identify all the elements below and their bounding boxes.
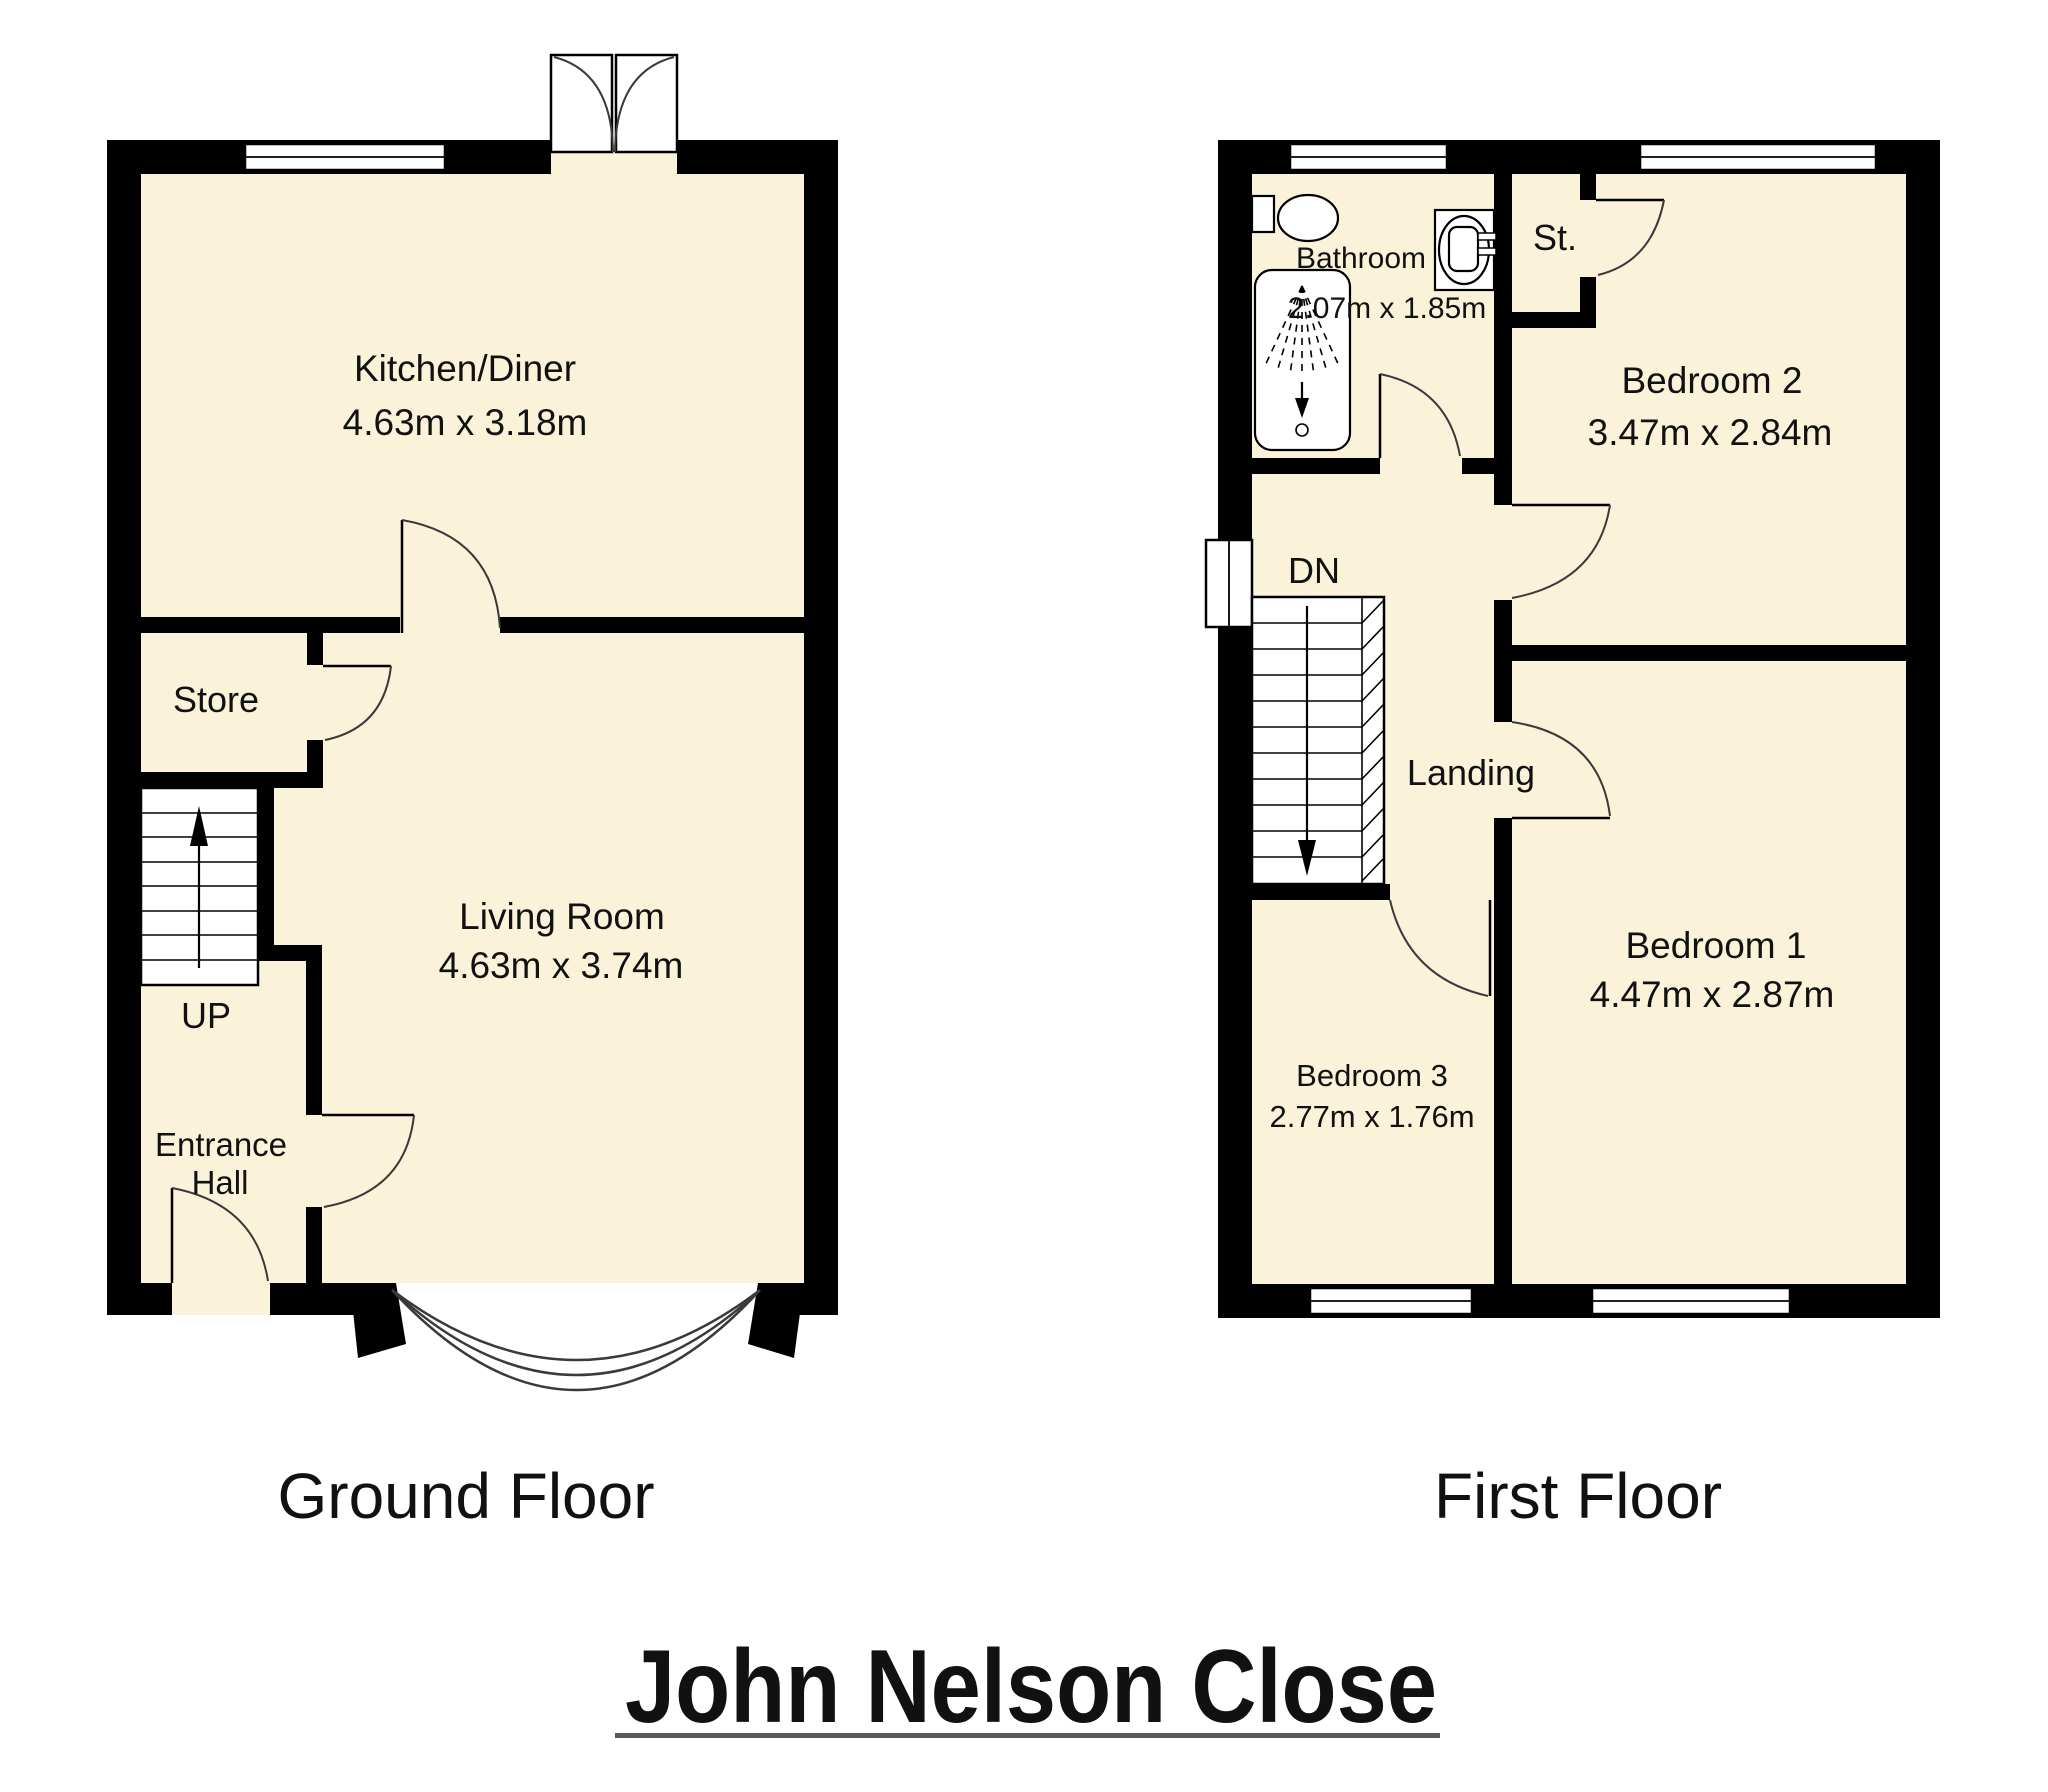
stairs-up bbox=[141, 788, 258, 985]
ground-floor-title: Ground Floor bbox=[277, 1460, 654, 1532]
room-label-entrance: Entrance bbox=[155, 1126, 287, 1163]
room-label-bedroom2: Bedroom 2 bbox=[1622, 360, 1803, 401]
room-dims-kitchen: 4.63m x 3.18m bbox=[343, 402, 588, 443]
room-dims-living: 4.63m x 3.74m bbox=[439, 945, 684, 986]
first-floor-plan: Bathroom 2.07m x 1.85m St. Bedroom 2 3.4… bbox=[1206, 140, 1940, 1532]
room-label-st: St. bbox=[1533, 217, 1577, 258]
stairs-label-dn: DN bbox=[1288, 550, 1340, 591]
french-doors-icon bbox=[551, 55, 677, 152]
front-door-threshold bbox=[172, 1283, 270, 1315]
washbasin-icon bbox=[1435, 210, 1496, 290]
room-label-bedroom3: Bedroom 3 bbox=[1296, 1058, 1448, 1093]
stairs-label-up: UP bbox=[181, 995, 231, 1036]
stairs-down bbox=[1252, 597, 1384, 884]
room-label-store: Store bbox=[173, 679, 259, 720]
room-label-landing: Landing bbox=[1407, 752, 1535, 793]
title-underline bbox=[615, 1733, 1440, 1738]
room-dims-bedroom3: 2.77m x 1.76m bbox=[1269, 1099, 1474, 1134]
ground-floor-plan: Kitchen/Diner 4.63m x 3.18m Store UP Ent… bbox=[107, 55, 838, 1532]
room-label-living: Living Room bbox=[459, 896, 665, 937]
room-label-bathroom: Bathroom bbox=[1296, 242, 1426, 275]
room-label-bedroom1: Bedroom 1 bbox=[1626, 925, 1807, 966]
room-label-kitchen: Kitchen/Diner bbox=[354, 348, 576, 389]
ground-windows bbox=[245, 144, 445, 170]
floorplan-drawing: Kitchen/Diner 4.63m x 3.18m Store UP Ent… bbox=[0, 0, 2048, 1792]
room-dims-bedroom2: 3.47m x 2.84m bbox=[1588, 412, 1833, 453]
room-label-hall: Hall bbox=[192, 1164, 249, 1201]
first-floor-title: First Floor bbox=[1434, 1460, 1722, 1532]
floorplan-page: Kitchen/Diner 4.63m x 3.18m Store UP Ent… bbox=[0, 0, 2048, 1792]
page-title: John Nelson Close bbox=[625, 1629, 1437, 1745]
ground-floor-area bbox=[141, 174, 804, 1283]
bay-window-icon bbox=[392, 1290, 760, 1390]
room-dims-bedroom1: 4.47m x 2.87m bbox=[1590, 974, 1835, 1015]
plan-title-block: John Nelson Close bbox=[615, 1629, 1440, 1745]
room-dims-bathroom: 2.07m x 1.85m bbox=[1288, 292, 1486, 325]
